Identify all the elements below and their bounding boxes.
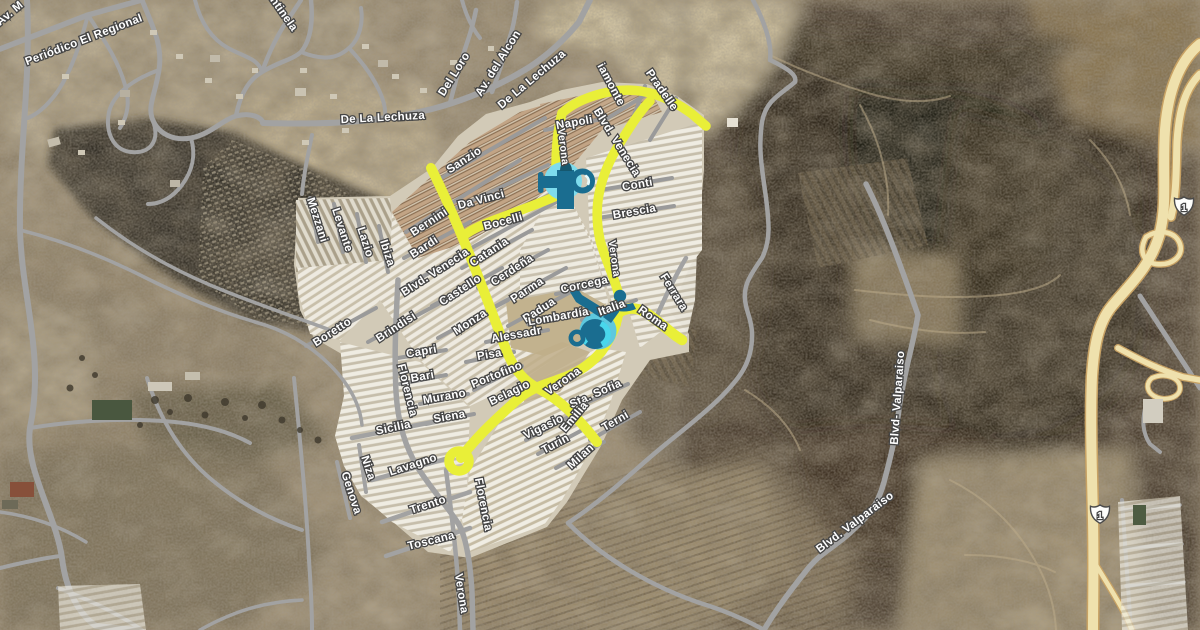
svg-text:1: 1 (1097, 511, 1103, 522)
svg-text:1: 1 (1181, 203, 1187, 214)
